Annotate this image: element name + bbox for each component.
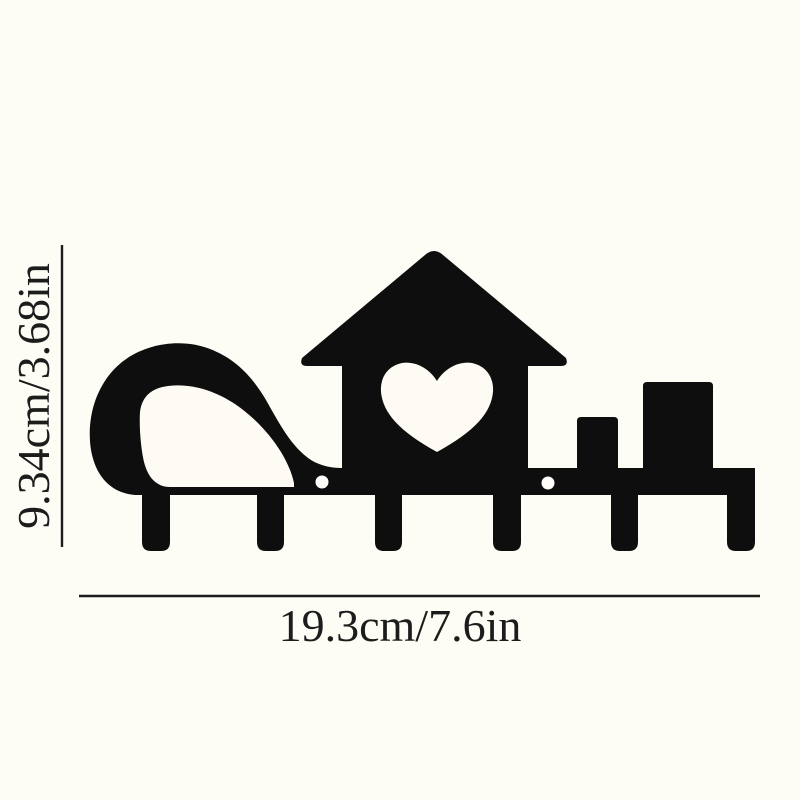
diagram-canvas: 9.34cm/3.68in 19.3cm/7.6in <box>0 0 800 800</box>
mounting-hole-right <box>542 477 555 490</box>
height-dimension-label: 9.34cm/3.68in <box>8 263 59 529</box>
width-dimension-label: 19.3cm/7.6in <box>279 600 522 651</box>
product-dimension-image: 9.34cm/3.68in 19.3cm/7.6in <box>0 0 800 800</box>
mounting-hole-left <box>316 476 329 489</box>
